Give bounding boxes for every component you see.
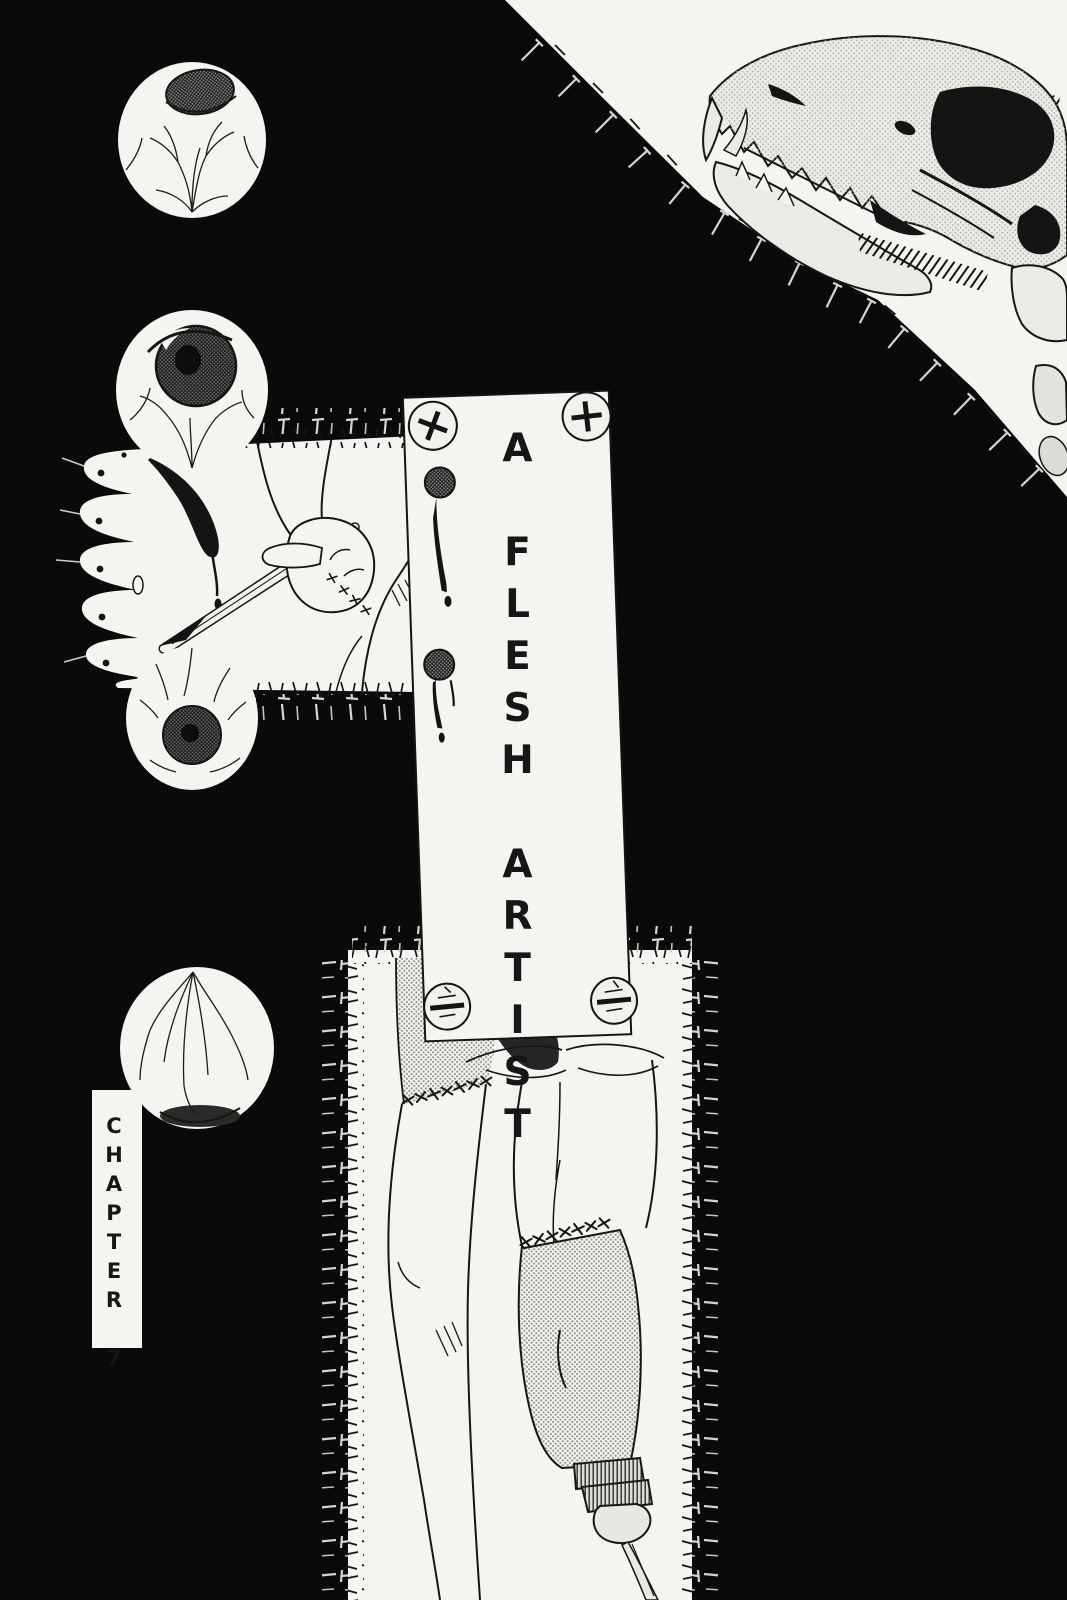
eyeball-three-quarter-iris — [116, 310, 268, 470]
eyeball-top-iris — [118, 62, 266, 218]
screw-slotted-icon — [423, 983, 471, 1031]
chapter-number-text: CHAPTER 7 — [102, 1114, 126, 1375]
panel-left-stitches — [348, 960, 364, 1600]
panel-right-pins — [692, 960, 718, 1600]
panel-left-pins — [322, 960, 348, 1600]
screw-slotted-icon — [590, 977, 638, 1025]
chapter-title-text: A FLESH ARTIST — [495, 426, 540, 1154]
manga-page: A FLESH ARTIST CHAPTER 7 — [0, 0, 1067, 1600]
eyeball-back-veins — [120, 967, 274, 1129]
panel-right-stitches — [678, 960, 694, 1600]
eyeball-front-iris — [126, 646, 258, 790]
